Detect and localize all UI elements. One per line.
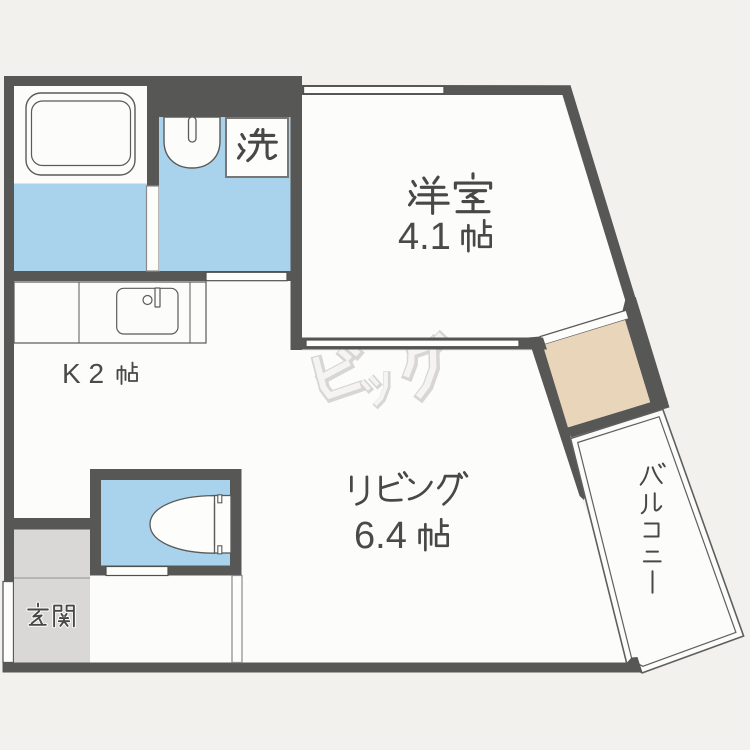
svg-text:K 2: K 2 [62,358,104,389]
svg-text:4.1: 4.1 [398,216,451,258]
svg-text:6.4: 6.4 [354,515,407,557]
